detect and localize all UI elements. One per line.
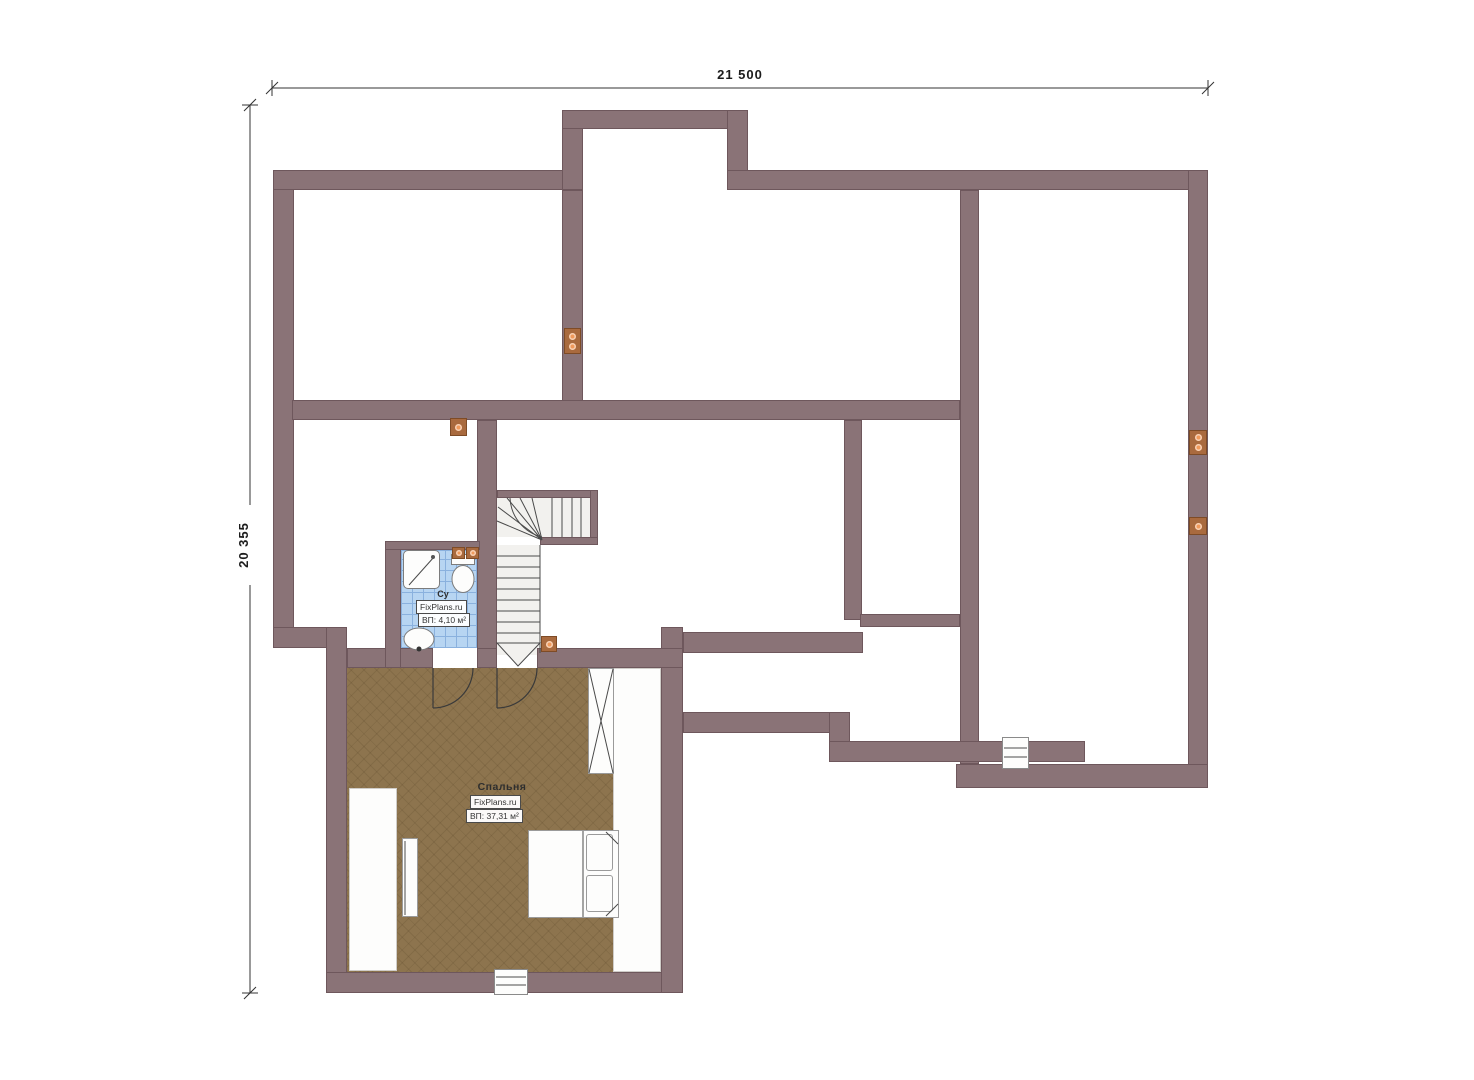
closet-run bbox=[613, 668, 661, 972]
power-socket-icon bbox=[452, 547, 465, 559]
dresser bbox=[402, 838, 418, 917]
wall-corridor-top bbox=[683, 632, 863, 653]
wall-top-outer-left bbox=[273, 170, 565, 190]
wardrobe bbox=[349, 788, 397, 971]
wall-top-outer-right bbox=[727, 170, 1208, 190]
power-socket-icon bbox=[1189, 517, 1207, 535]
wall-bedroom-left bbox=[326, 627, 347, 993]
wall-mid-horizontal bbox=[292, 400, 960, 420]
bathroom-name: Су bbox=[428, 589, 458, 599]
wall-bedroom-top-b bbox=[477, 648, 497, 668]
power-socket-icon bbox=[564, 328, 581, 354]
window-symbol bbox=[494, 969, 528, 995]
wall-corridor-south bbox=[829, 741, 1085, 762]
floor-plan: 21 500 20 355 Су FixPlans.ru ВП: 4,10 м²… bbox=[0, 0, 1474, 1080]
power-socket-icon bbox=[1189, 430, 1207, 455]
power-socket-icon bbox=[450, 418, 467, 436]
bedroom-area-box: ВП: 37,31 м² bbox=[466, 809, 523, 823]
bedroom-name: Спальня bbox=[462, 781, 542, 793]
dimension-width-label: 21 500 bbox=[680, 67, 800, 82]
power-socket-icon bbox=[541, 636, 557, 652]
wall-stair-enclosure-mid bbox=[540, 537, 598, 545]
wall-bathroom-left bbox=[385, 541, 401, 668]
pillow bbox=[586, 875, 613, 912]
shower-tray bbox=[403, 550, 440, 589]
wall-bump-top bbox=[562, 110, 748, 129]
wall-stair-left bbox=[477, 420, 497, 668]
wall-rightroom-bottom bbox=[956, 764, 1208, 788]
closet-shaft bbox=[588, 668, 614, 774]
wall-corridor-bottom bbox=[683, 712, 850, 733]
wall-smallroom-bottom bbox=[860, 614, 960, 627]
bedroom-brand-box: FixPlans.ru bbox=[470, 795, 521, 809]
bathroom-area-box: ВП: 4,10 м² bbox=[418, 613, 470, 627]
wall-bedroom-right bbox=[661, 627, 683, 993]
wall-smallroom-left bbox=[844, 420, 862, 620]
wall-divider-center bbox=[960, 190, 979, 764]
wall-divider-topleft bbox=[562, 190, 583, 420]
power-socket-icon bbox=[466, 547, 479, 559]
staircase-upper-flight bbox=[497, 498, 590, 537]
pillow bbox=[586, 834, 613, 871]
window-symbol bbox=[1002, 737, 1029, 769]
wall-left-outer bbox=[273, 170, 294, 648]
wall-bedroom-top-c bbox=[537, 648, 683, 668]
staircase-lower-flight bbox=[497, 545, 540, 655]
wall-stair-enclosure-top bbox=[497, 490, 598, 498]
dimension-height-label: 20 355 bbox=[236, 505, 251, 585]
wall-right-outer bbox=[1188, 170, 1208, 788]
